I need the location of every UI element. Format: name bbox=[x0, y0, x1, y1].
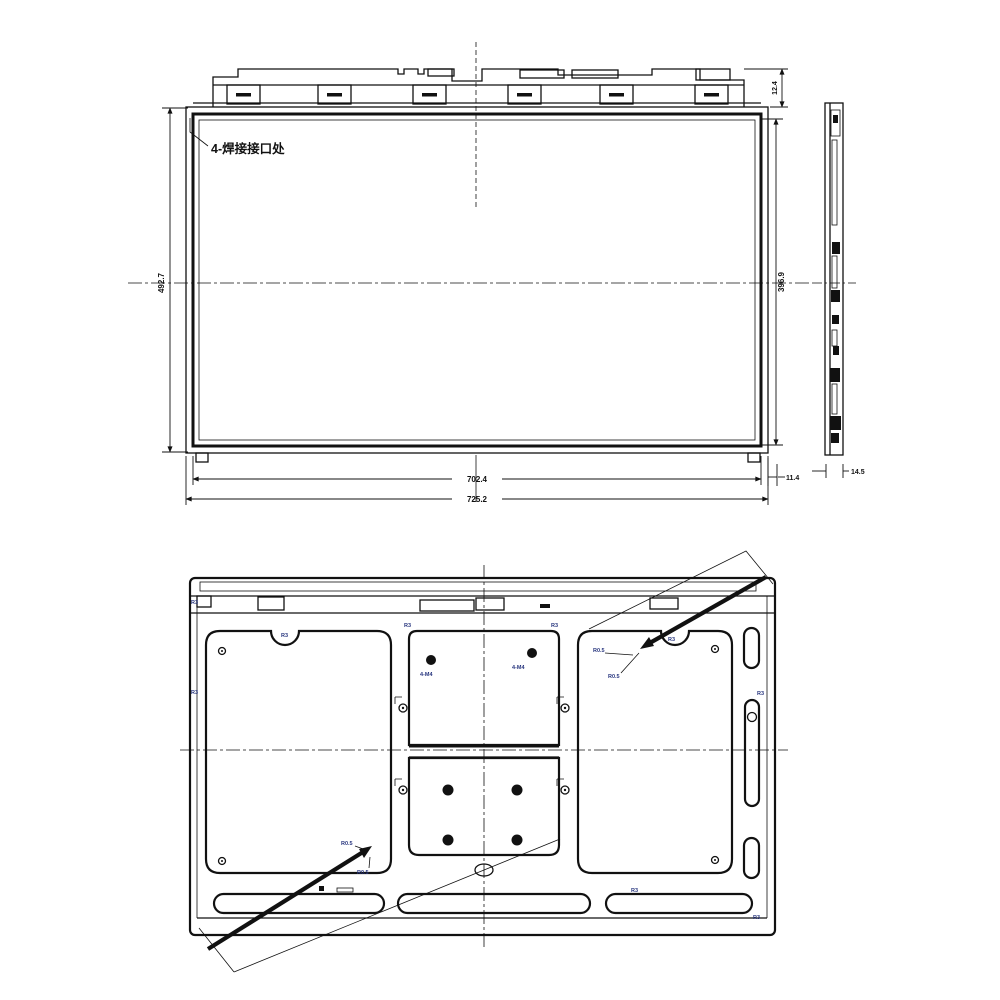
vesa-hole bbox=[443, 835, 454, 846]
side-slot-keyhole bbox=[745, 700, 759, 806]
screw-hole bbox=[395, 697, 407, 712]
mount-hole-label: 4-M4 bbox=[512, 665, 525, 671]
left-recess-outline bbox=[206, 631, 391, 873]
vent-slot bbox=[606, 894, 752, 913]
dim-side-offset-text: 11.4 bbox=[786, 475, 799, 482]
corner-radius-label: R3 bbox=[753, 915, 760, 921]
weld-note-label: 4-焊接接口处 bbox=[211, 141, 285, 156]
panel-outer-outline bbox=[186, 107, 768, 453]
mount-hole bbox=[426, 655, 436, 665]
screw-hole bbox=[219, 858, 226, 865]
side-slot-top bbox=[744, 628, 759, 668]
dimension-side-offset: 11.4 bbox=[768, 458, 799, 486]
dim-thickness-text: 14.5 bbox=[851, 469, 865, 476]
corner-radius-label: R3 bbox=[668, 637, 675, 643]
edge-radius-label: R0.5 bbox=[357, 870, 369, 876]
weld-arrow-bottom-left: R0.5 R0.5 bbox=[199, 839, 560, 972]
top-board-profile bbox=[213, 69, 744, 107]
weld-arrow-top-right: R0.5 R0.5 bbox=[589, 551, 773, 680]
corner-radius-label: R3 bbox=[281, 633, 288, 639]
rear-top-step-details bbox=[197, 596, 678, 611]
dimension-height: 492.7 bbox=[157, 108, 188, 452]
bottom-foot-left bbox=[196, 453, 208, 462]
corner-radius-label: R3 bbox=[551, 623, 558, 629]
edge-radius-label: R0.5 bbox=[341, 841, 353, 847]
engineering-drawing-sheet: 4-焊接接口处 492.7 396.9 12.4 7 bbox=[0, 0, 1000, 1000]
connector-tab bbox=[413, 85, 446, 104]
side-internal-details bbox=[830, 110, 841, 443]
active-area-outline bbox=[199, 120, 755, 440]
side-profile-outline bbox=[825, 103, 843, 455]
dim-height-text: 492.7 bbox=[157, 272, 166, 293]
corner-radius-label: R3 bbox=[191, 690, 198, 696]
dim-outer-width-text: 725.2 bbox=[467, 495, 488, 504]
screw-hole bbox=[712, 646, 719, 653]
side-slot-bottom bbox=[744, 838, 759, 878]
screw-hole bbox=[395, 779, 407, 794]
panel-mechanical-drawing: 4-焊接接口处 492.7 396.9 12.4 7 bbox=[0, 0, 1000, 1000]
connector-tab bbox=[227, 85, 260, 104]
dimension-thickness: 14.5 bbox=[812, 464, 865, 478]
side-view: 14.5 bbox=[812, 103, 865, 478]
dim-active-height-text: 396.9 bbox=[777, 271, 786, 292]
connector-tab bbox=[318, 85, 351, 104]
screw-hole bbox=[219, 648, 226, 655]
dim-top-offset-text: 12.4 bbox=[772, 81, 779, 95]
right-recess-outline bbox=[578, 631, 732, 873]
vesa-hole bbox=[512, 835, 523, 846]
edge-radius-label: R0.5 bbox=[593, 648, 605, 654]
mount-hole bbox=[527, 648, 537, 658]
corner-radius-label: R3 bbox=[757, 691, 764, 697]
corner-radius-label: R3 bbox=[404, 623, 411, 629]
dimension-active-height: 396.9 bbox=[761, 119, 786, 445]
edge-radius-label: R0.5 bbox=[608, 674, 620, 680]
connector-tab bbox=[600, 85, 633, 104]
vesa-hole bbox=[512, 785, 523, 796]
vesa-hole bbox=[443, 785, 454, 796]
vent-slot bbox=[398, 894, 590, 913]
panel-bezel-outline bbox=[193, 114, 761, 446]
front-view: 4-焊接接口处 492.7 396.9 12.4 7 bbox=[128, 42, 810, 505]
mount-hole-label: 4-M4 bbox=[420, 672, 433, 678]
connector-tab bbox=[508, 85, 541, 104]
rear-view: R0.5 R0.5 R0.5 R0.5 4-M4 4-M4 R3 R3 R3 R… bbox=[180, 551, 788, 972]
corner-radius-label: R3 bbox=[191, 600, 198, 606]
dim-inner-width-text: 702.4 bbox=[467, 475, 488, 484]
dimension-top-offset: 12.4 bbox=[744, 69, 788, 107]
screw-hole bbox=[712, 857, 719, 864]
bottom-foot-right bbox=[748, 453, 760, 462]
dimension-inner-width: 702.4 bbox=[193, 456, 761, 485]
vent-slot bbox=[214, 894, 384, 913]
rear-top-vent-band bbox=[200, 582, 756, 591]
corner-radius-label: R3 bbox=[631, 888, 638, 894]
connector-tab bbox=[695, 85, 728, 104]
